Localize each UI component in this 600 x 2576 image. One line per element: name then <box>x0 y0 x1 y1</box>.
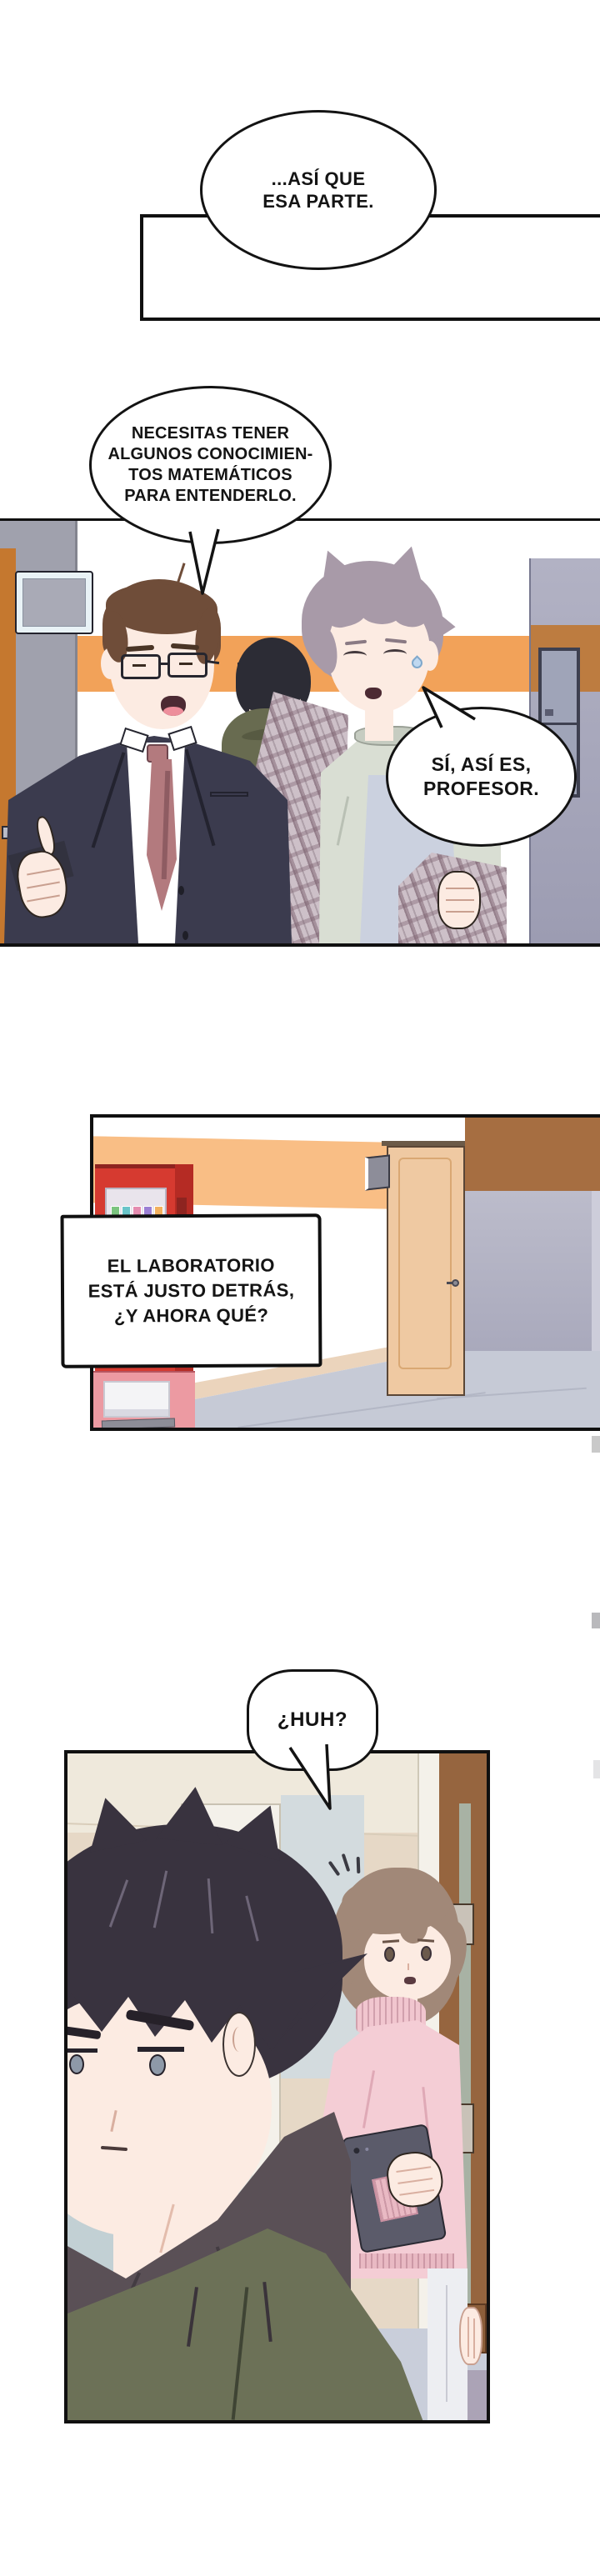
glasses-right-lens-icon <box>167 653 207 678</box>
speech-bubble-intro: ...ASÍ QUE ESA PARTE. <box>200 110 437 270</box>
corridor-door <box>387 1146 465 1396</box>
speech-line: PARA ENTENDERLO. <box>124 486 297 507</box>
man-eye <box>64 2048 97 2078</box>
iris <box>69 2054 84 2074</box>
student-hand <box>437 871 481 929</box>
narration-box: EL LABORATORIO ESTÁ JUSTO DETRÁS, ¿Y AHO… <box>61 1213 322 1368</box>
hair-spike <box>157 1783 228 1845</box>
door-inner-panel <box>398 1158 452 1369</box>
narration-line: EL LABORATORIO <box>107 1253 275 1278</box>
upper-brown-wall <box>465 1118 600 1193</box>
bubble-tail-icon <box>283 1738 342 1817</box>
student-mouth <box>365 688 382 699</box>
finger-line <box>446 911 474 913</box>
ear-inner-line <box>232 2027 246 2052</box>
door-sign-plate <box>365 1154 390 1190</box>
professor-mouth <box>161 696 186 716</box>
page-gap-marker <box>592 1436 600 1453</box>
comic-panel-closeup <box>64 1750 490 2423</box>
window-latch <box>545 709 553 716</box>
student-neck <box>365 709 393 741</box>
speech-line: ALGUNOS CONOCIMIEN- <box>107 444 312 465</box>
kiosk-screen <box>103 1381 170 1418</box>
speech-line: TOS MATEMÁTICOS <box>128 465 292 486</box>
professor-head <box>102 579 227 738</box>
closed-eye-icon <box>383 649 407 659</box>
closed-eye-icon <box>343 651 367 661</box>
professor-eye <box>179 663 192 665</box>
suit-button <box>182 931 188 940</box>
comic-panel-hallway: SÍ, ASÍ ES, PROFESOR. <box>0 518 600 947</box>
speech-line: ESA PARTE. <box>262 190 374 213</box>
wall-whiteboard <box>15 571 93 634</box>
door-handle-stem <box>447 1282 452 1284</box>
character-man <box>67 1753 487 2420</box>
door-handle-icon <box>452 1279 459 1287</box>
finger-line <box>446 899 474 901</box>
professor-hand-thumbs-up <box>15 819 90 944</box>
page-gap-marker <box>592 1613 600 1628</box>
professor-eye <box>132 664 146 667</box>
man-ear <box>222 2012 256 2077</box>
speech-line: ¿HUH? <box>277 1708 347 1732</box>
speech-bubble-professor: NECESITAS TENER ALGUNOS CONOCIMIEN- TOS … <box>89 386 332 544</box>
suit-pocket <box>210 792 248 797</box>
webtoon-page: ...ASÍ QUE ESA PARTE. NECESITAS TENER AL… <box>0 0 600 2576</box>
speech-line: ...ASÍ QUE <box>272 168 366 190</box>
whiteboard-surface <box>22 578 86 627</box>
iris <box>149 2054 166 2076</box>
finger-line <box>446 888 474 889</box>
speech-line: NECESITAS TENER <box>132 423 289 444</box>
bubble-tail-icon <box>412 679 487 738</box>
page-gap-marker <box>593 1760 600 1778</box>
speech-line: PROFESOR. <box>423 777 539 801</box>
student-ear <box>422 641 438 671</box>
narration-line: ¿Y AHORA QUÉ? <box>114 1303 268 1329</box>
narration-line: ESTÁ JUSTO DETRÁS, <box>88 1278 295 1303</box>
speech-line: SÍ, ASÍ ES, <box>432 753 532 777</box>
gray-end-wall <box>465 1191 600 1351</box>
kiosk-slot-bar <box>102 1418 175 1429</box>
window-divider <box>542 723 577 725</box>
glasses-left-lens-icon <box>121 654 161 679</box>
kiosk-screen-shade <box>105 1409 168 1416</box>
man-eye <box>137 2047 184 2080</box>
mouth-tongue <box>163 707 183 716</box>
gray-wall-highlight <box>592 1191 600 1351</box>
bubble-tail-icon <box>179 525 221 600</box>
suit-button <box>178 886 184 895</box>
glasses-bridge <box>159 663 169 665</box>
